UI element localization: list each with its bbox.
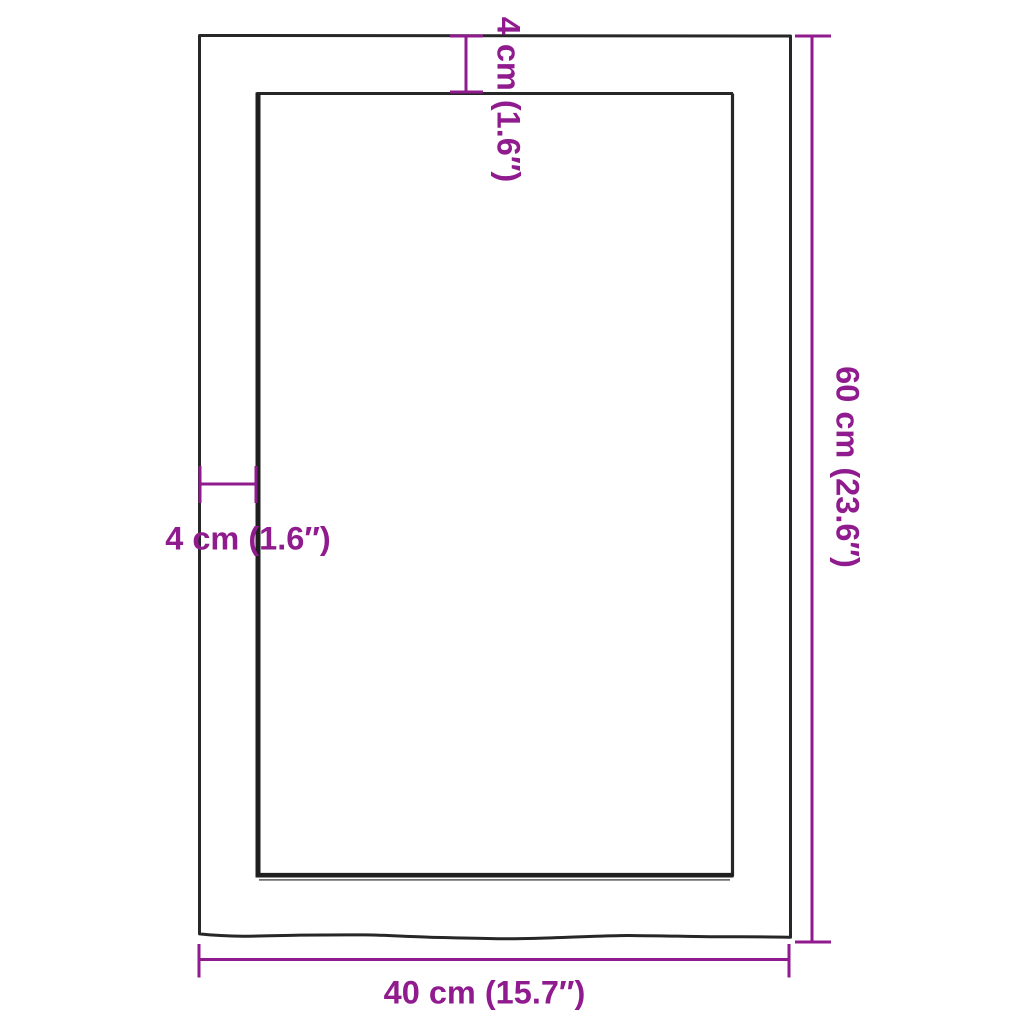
svg-text:40 cm (15.7″): 40 cm (15.7″) bbox=[384, 975, 586, 1011]
svg-text:4 cm (1.6″): 4 cm (1.6″) bbox=[491, 17, 527, 183]
svg-text:4 cm (1.6″): 4 cm (1.6″) bbox=[165, 521, 331, 557]
svg-text:60 cm (23.6″): 60 cm (23.6″) bbox=[830, 366, 866, 568]
